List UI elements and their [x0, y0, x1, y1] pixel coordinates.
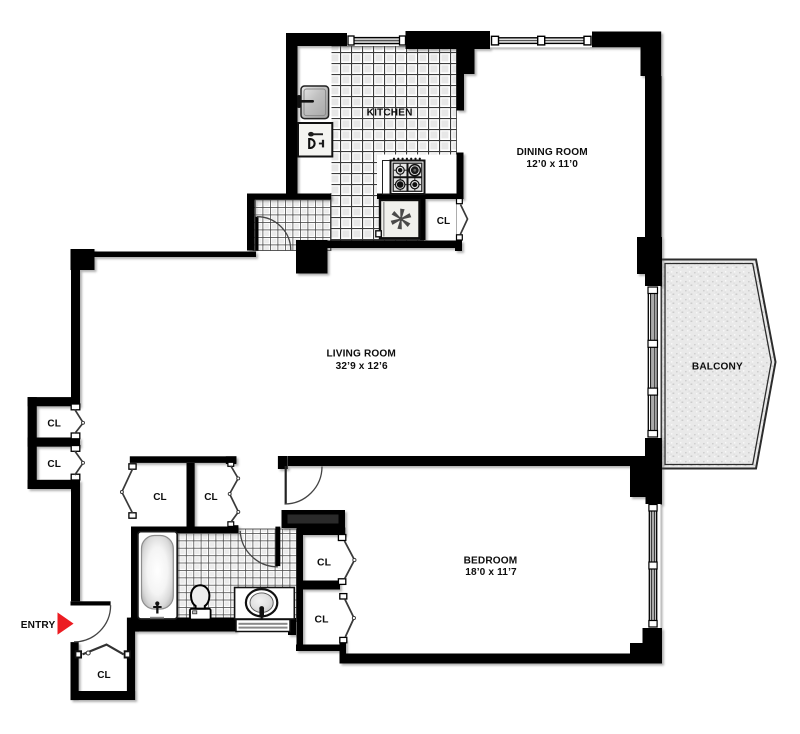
- svg-text:CL: CL: [47, 459, 61, 470]
- svg-text:CL: CL: [47, 419, 61, 430]
- svg-text:CL: CL: [317, 558, 332, 569]
- svg-text:CL: CL: [204, 492, 218, 503]
- svg-text:KITCHEN: KITCHEN: [367, 108, 413, 119]
- svg-text:DINING ROOM: DINING ROOM: [517, 147, 588, 158]
- svg-text:CL: CL: [437, 216, 451, 227]
- svg-text:CL: CL: [153, 492, 167, 503]
- svg-text:CL: CL: [314, 615, 329, 626]
- svg-text:12’0 x 11’0: 12’0 x 11’0: [526, 159, 578, 170]
- svg-text:BALCONY: BALCONY: [692, 361, 743, 372]
- svg-text:LIVING ROOM: LIVING ROOM: [326, 349, 396, 360]
- svg-text:ENTRY: ENTRY: [21, 620, 56, 631]
- svg-text:18’0 x 11’7: 18’0 x 11’7: [465, 567, 517, 578]
- svg-text:32’9 x 12’6: 32’9 x 12’6: [336, 361, 388, 372]
- svg-text:CL: CL: [97, 670, 111, 681]
- svg-text:BEDROOM: BEDROOM: [464, 556, 518, 567]
